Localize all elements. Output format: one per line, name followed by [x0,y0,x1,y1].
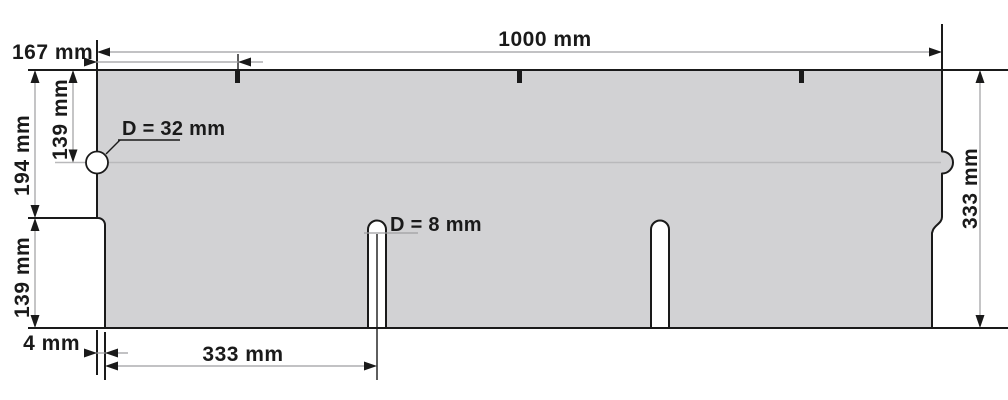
tick-mark-2 [517,70,522,83]
tick-mark-3 [799,70,804,83]
panel-shape [97,70,953,328]
arrowhead-left [97,48,110,57]
dim-1000: 1000 mm [97,28,942,57]
tick-mark-1 [235,70,240,83]
dim-167-label: 167 mm [12,41,93,64]
dim-1000-label: 1000 mm [498,28,591,51]
arrowhead-down [976,315,985,328]
dim-333-bottom: 333 mm [105,343,377,371]
arrowhead-up [976,70,985,83]
dim-333-right: 333 mm [959,70,985,328]
left-notch-circle [86,152,108,174]
d32-label: D = 32 mm [122,118,225,140]
dim-333-bottom-label: 333 mm [202,343,283,366]
arrowhead-left [238,58,251,67]
arrowhead-left [105,349,118,358]
arrowhead-right [929,48,942,57]
arrowhead-right [84,349,97,358]
dim-139-bottom: 139 mm [11,218,40,328]
dim-4: 4 mm [23,332,128,358]
d8-label: D = 8 mm [390,214,482,236]
dim-139-bottom-label: 139 mm [11,237,34,318]
panel-dimension-drawing: 1000 mm 167 mm 194 mm 139 mm 139 mm 4 mm [0,0,1008,400]
dim-333-right-label: 333 mm [959,148,982,229]
arrowhead-down [31,205,40,218]
dim-194-label: 194 mm [11,115,34,196]
dim-139-top-label: 139 mm [49,79,72,160]
arrowhead-up [31,218,40,231]
technical-drawing-canvas: 1000 mm 167 mm 194 mm 139 mm 139 mm 4 mm [0,0,1008,400]
dim-4-label: 4 mm [23,332,80,355]
dim-139-top: 139 mm [49,70,78,163]
dim-167: 167 mm [12,41,263,67]
dim-194: 194 mm [11,70,40,218]
arrowhead-right [364,362,377,371]
arrowhead-up [31,70,40,83]
arrowhead-left [105,362,118,371]
